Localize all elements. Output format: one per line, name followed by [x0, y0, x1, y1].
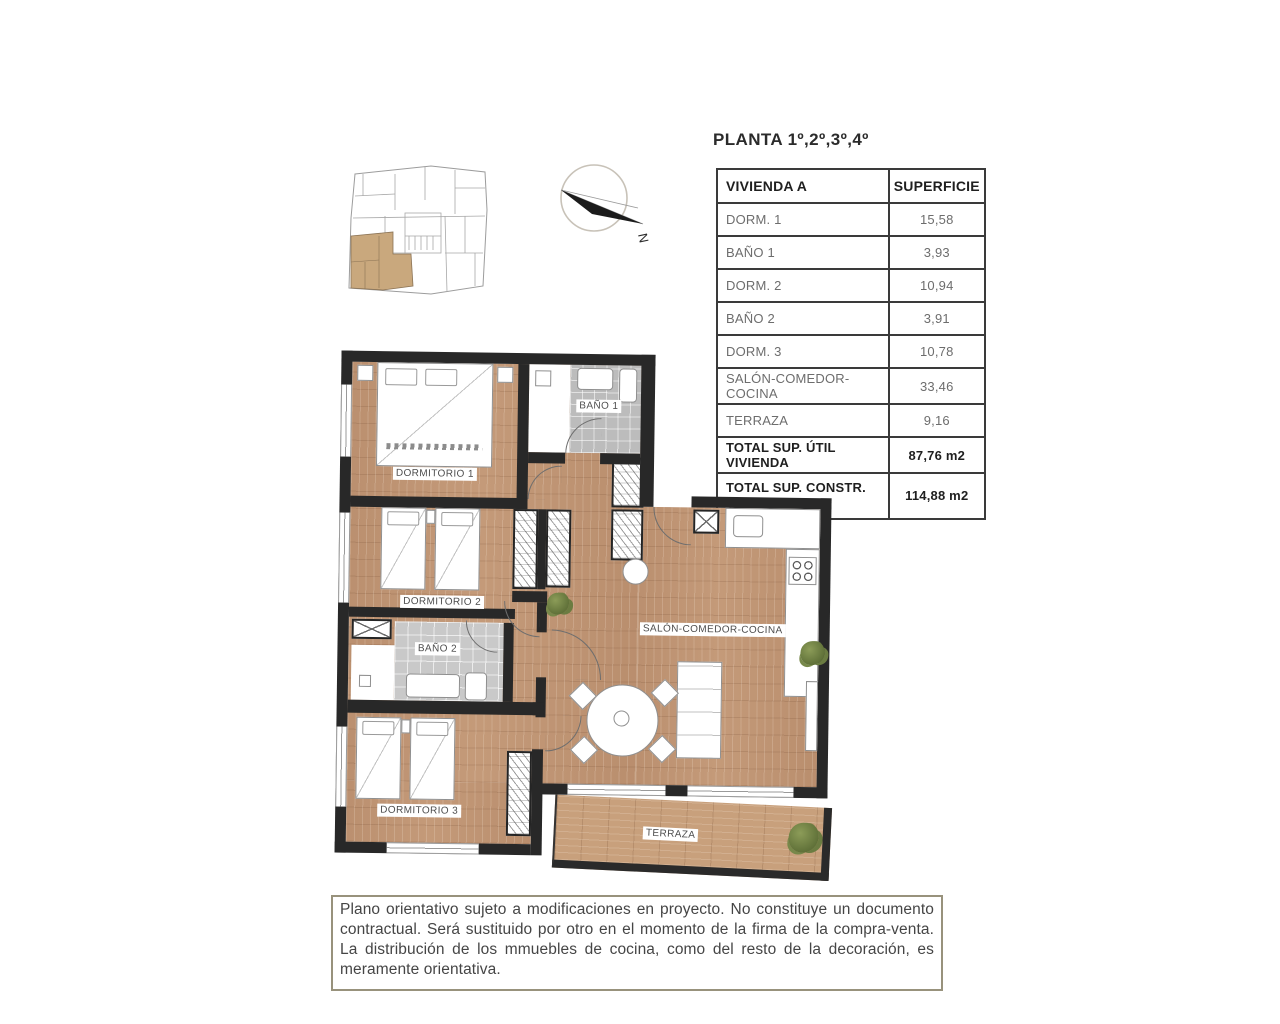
nightstand: [401, 719, 410, 733]
total-value: 87,76 m2: [889, 437, 985, 473]
closet-box: [352, 619, 392, 640]
window: [335, 726, 347, 806]
row-value: 10,78: [889, 335, 985, 368]
pillow: [362, 721, 394, 735]
nightstand: [426, 510, 435, 524]
row-value: 3,91: [889, 302, 985, 335]
window: [387, 842, 479, 854]
table-header-row: VIVIENDA A SUPERFICIE: [717, 169, 985, 203]
wardrobe: [611, 509, 644, 560]
plant: [788, 822, 819, 853]
compass-north-label: N: [635, 232, 652, 244]
room-label: SALÓN-COMEDOR-COCINA: [640, 622, 786, 637]
compass-icon: N: [548, 152, 652, 248]
pillow: [387, 511, 419, 525]
nightstand: [497, 367, 513, 383]
terrace: TERRAZA: [552, 795, 832, 881]
floor-plan-sheet: { "header": { "title": "PLANTA 1º,2º,3º,…: [0, 0, 1280, 1024]
wall-segment: [537, 509, 546, 589]
wardrobe: [512, 509, 538, 589]
washing-machine: [535, 370, 551, 386]
window: [340, 385, 352, 457]
shaft-box: [693, 509, 719, 533]
row-value: 3,93: [889, 236, 985, 269]
boiler-unit: [359, 675, 371, 687]
room-label: BAÑO 2: [415, 642, 460, 656]
table-row: DORM. 2 10,94: [717, 269, 985, 302]
row-label: BAÑO 2: [717, 302, 889, 335]
wardrobe: [545, 509, 571, 587]
vanity-sink: [406, 673, 460, 698]
disclaimer-box: Plano orientativo sujeto a modificacione…: [331, 895, 943, 991]
pillow: [385, 368, 417, 385]
room-label: BAÑO 1: [576, 399, 621, 413]
disclaimer-text: Plano orientativo sujeto a modificacione…: [340, 900, 934, 981]
exterior-recess: [351, 645, 395, 701]
wall-segment: [639, 355, 655, 507]
table-row: BAÑO 1 3,93: [717, 236, 985, 269]
sliding-door: [687, 785, 793, 797]
toilet: [465, 672, 487, 700]
row-label: BAÑO 1: [717, 236, 889, 269]
bathtub: [619, 368, 637, 402]
row-value: 15,58: [889, 203, 985, 236]
table-row: DORM. 1 15,58: [717, 203, 985, 236]
row-value: 10,94: [889, 269, 985, 302]
wall-segment: [600, 453, 640, 465]
col-header-superficie: SUPERFICIE: [889, 169, 985, 203]
floor-plan: TERRAZA DORMITORIO 1 BAÑO 1 DORMITORIO 2…: [334, 345, 841, 876]
pillow: [416, 722, 448, 736]
wardrobe: [506, 751, 532, 836]
page-title: PLANTA 1º,2º,3º,4º: [713, 130, 869, 150]
wall-segment: [531, 749, 543, 855]
room-label: DORMITORIO 1: [393, 467, 477, 481]
wall-segment: [516, 364, 529, 509]
room-label: DORMITORIO 3: [377, 804, 461, 818]
kitchen-sink: [733, 515, 763, 537]
pillow: [441, 512, 473, 526]
wall-segment: [503, 623, 514, 702]
room-label: DORMITORIO 2: [400, 595, 484, 609]
row-label: DORM. 2: [717, 269, 889, 302]
col-header-vivienda: VIVIENDA A: [717, 169, 889, 203]
total-value: 114,88 m2: [889, 473, 985, 519]
sliding-door: [567, 784, 665, 796]
key-plan: [335, 158, 515, 306]
wall-segment: [348, 700, 544, 716]
nightstand: [357, 365, 373, 381]
window: [338, 513, 350, 603]
pillow: [425, 369, 457, 386]
table-row: BAÑO 2 3,91: [717, 302, 985, 335]
row-label: DORM. 1: [717, 203, 889, 236]
sofa: [676, 661, 722, 759]
stove: [788, 557, 816, 585]
row-value: 33,46: [889, 368, 985, 404]
wall-segment: [533, 702, 544, 715]
wall-segment: [528, 452, 565, 464]
room-label: TERRAZA: [643, 826, 699, 842]
washbasin: [577, 368, 613, 391]
row-value: 9,16: [889, 404, 985, 437]
tv-cabinet: [805, 681, 818, 751]
table-setting: [613, 710, 629, 726]
